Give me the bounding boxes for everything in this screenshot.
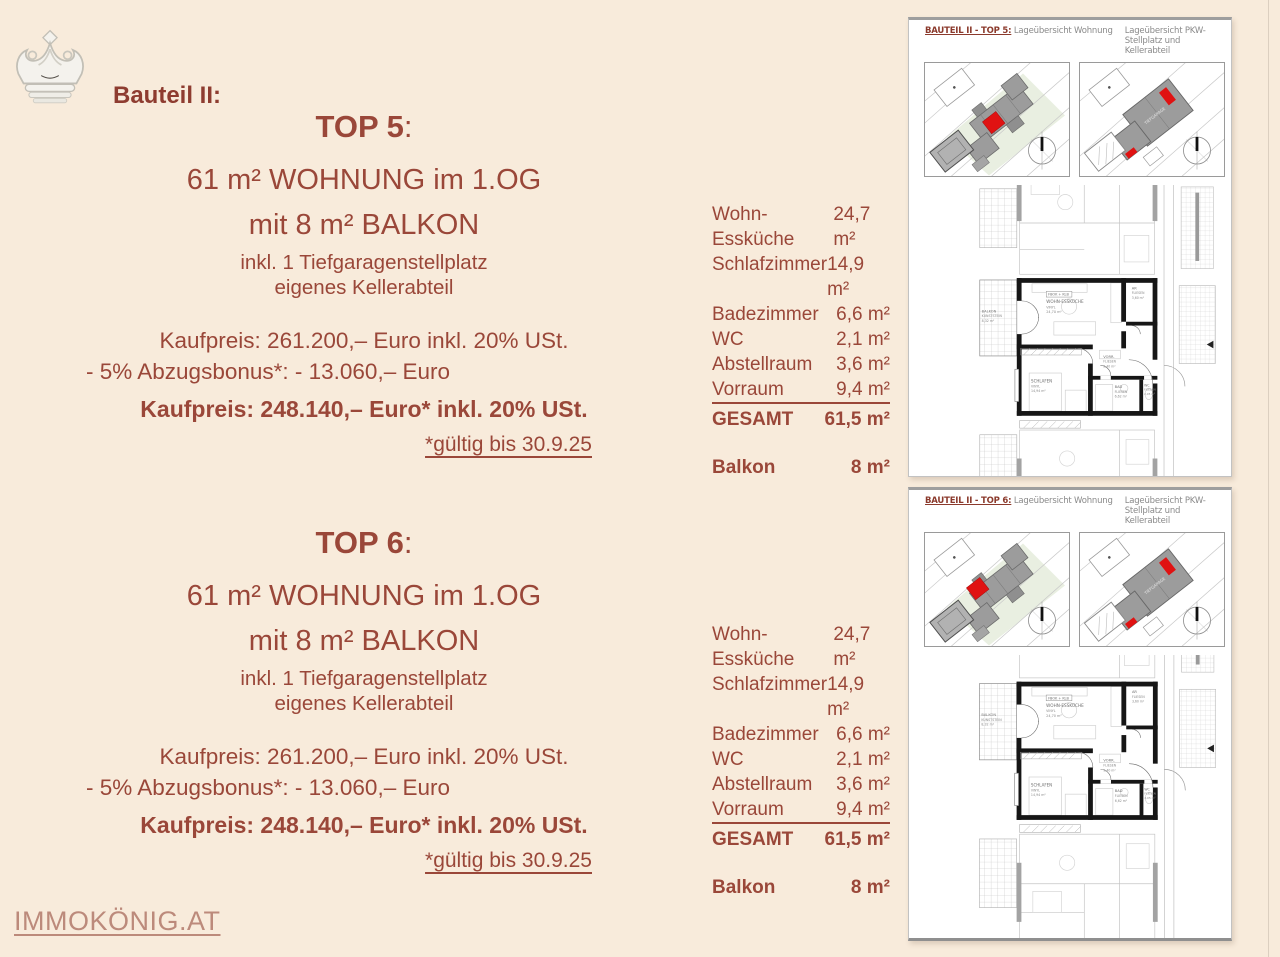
listing-detail-cellar: eigenes Kellerabteil (72, 276, 656, 299)
plan-sheet-header: BAUTEIL II - TOP 5: Lageübersicht Wohnun… (909, 20, 1231, 60)
price-discount: - 5% Abzugsbonus*: - 13.060,– Euro (72, 359, 656, 385)
table-row: Abstellraum3,6 m² (712, 352, 890, 377)
listing-title: TOP 5: (72, 110, 656, 144)
table-row: Schlafzimmer14,9 m² (712, 672, 890, 722)
price-validity: *gültig bis 30.9.25 (72, 432, 656, 457)
listing-subtitle-size: 61 m² WOHNUNG im 1.OG (72, 164, 656, 197)
price-discount: - 5% Abzugsbonus*: - 13.060,– Euro (72, 775, 656, 801)
plan-sheet-header: BAUTEIL II - TOP 6: Lageübersicht Wohnun… (909, 490, 1231, 530)
table-row-balcony: Balkon8 m² (712, 455, 890, 480)
listing-subtitle-balcony: mit 8 m² BALKON (72, 209, 656, 242)
plan-sheet-top6: BAUTEIL II - TOP 6: Lageübersicht Wohnun… (908, 487, 1232, 941)
table-row: Wohn-Essküche24,7 m² (712, 622, 890, 672)
site-map-wohnung-top5 (924, 62, 1070, 177)
table-row: Wohn-Essküche24,7 m² (712, 202, 890, 252)
table-row: Vorraum9,4 m² (712, 797, 890, 824)
table-row-total: GESAMT61,5 m² (712, 827, 890, 852)
price-validity: *gültig bis 30.9.25 (72, 848, 656, 873)
site-map-wohnung-top6 (924, 532, 1070, 647)
listing-detail-cellar: eigenes Kellerabteil (72, 692, 656, 715)
listing-detail-garage: inkl. 1 Tiefgaragenstellplatz (72, 251, 656, 274)
crown-icon (6, 26, 94, 118)
floor-plan-top6 (924, 655, 1216, 941)
room-table-top5: Wohn-Essküche24,7 m² Schlafzimmer14,9 m²… (712, 202, 890, 480)
table-row: WC2,1 m² (712, 327, 890, 352)
room-table-top6: Wohn-Essküche24,7 m² Schlafzimmer14,9 m²… (712, 622, 890, 900)
brand-label: Bauteil II: (113, 82, 221, 110)
listing-subtitle-size: 61 m² WOHNUNG im 1.OG (72, 580, 656, 613)
site-map-pkw-keller-top6 (1079, 532, 1225, 647)
price-original: Kaufpreis: 261.200,– Euro inkl. 20% USt. (72, 328, 656, 354)
listing-top5: TOP 5: 61 m² WOHNUNG im 1.OG mit 8 m² BA… (72, 110, 656, 457)
listing-detail-garage: inkl. 1 Tiefgaragenstellplatz (72, 667, 656, 690)
floor-plan-top5 (924, 185, 1216, 477)
table-row-balcony: Balkon8 m² (712, 875, 890, 900)
table-row: Vorraum9,4 m² (712, 377, 890, 404)
page-edge-rule (1268, 0, 1269, 957)
listing-title: TOP 6: (72, 526, 656, 560)
table-row-total: GESAMT61,5 m² (712, 407, 890, 432)
listing-subtitle-balcony: mit 8 m² BALKON (72, 625, 656, 658)
site-map-pkw-keller-top5 (1079, 62, 1225, 177)
price-final: Kaufpreis: 248.140,– Euro* inkl. 20% USt… (72, 812, 656, 839)
plan-sheet-top5: BAUTEIL II - TOP 5: Lageübersicht Wohnun… (908, 17, 1232, 477)
table-row: Badezimmer6,6 m² (712, 302, 890, 327)
website-link[interactable]: IMMOKÖNIG.AT (14, 906, 221, 937)
table-row: WC2,1 m² (712, 747, 890, 772)
listing-top6: TOP 6: 61 m² WOHNUNG im 1.OG mit 8 m² BA… (72, 526, 656, 873)
table-row: Schlafzimmer14,9 m² (712, 252, 890, 302)
table-row: Badezimmer6,6 m² (712, 722, 890, 747)
price-original: Kaufpreis: 261.200,– Euro inkl. 20% USt. (72, 744, 656, 770)
price-final: Kaufpreis: 248.140,– Euro* inkl. 20% USt… (72, 396, 656, 423)
table-row: Abstellraum3,6 m² (712, 772, 890, 797)
